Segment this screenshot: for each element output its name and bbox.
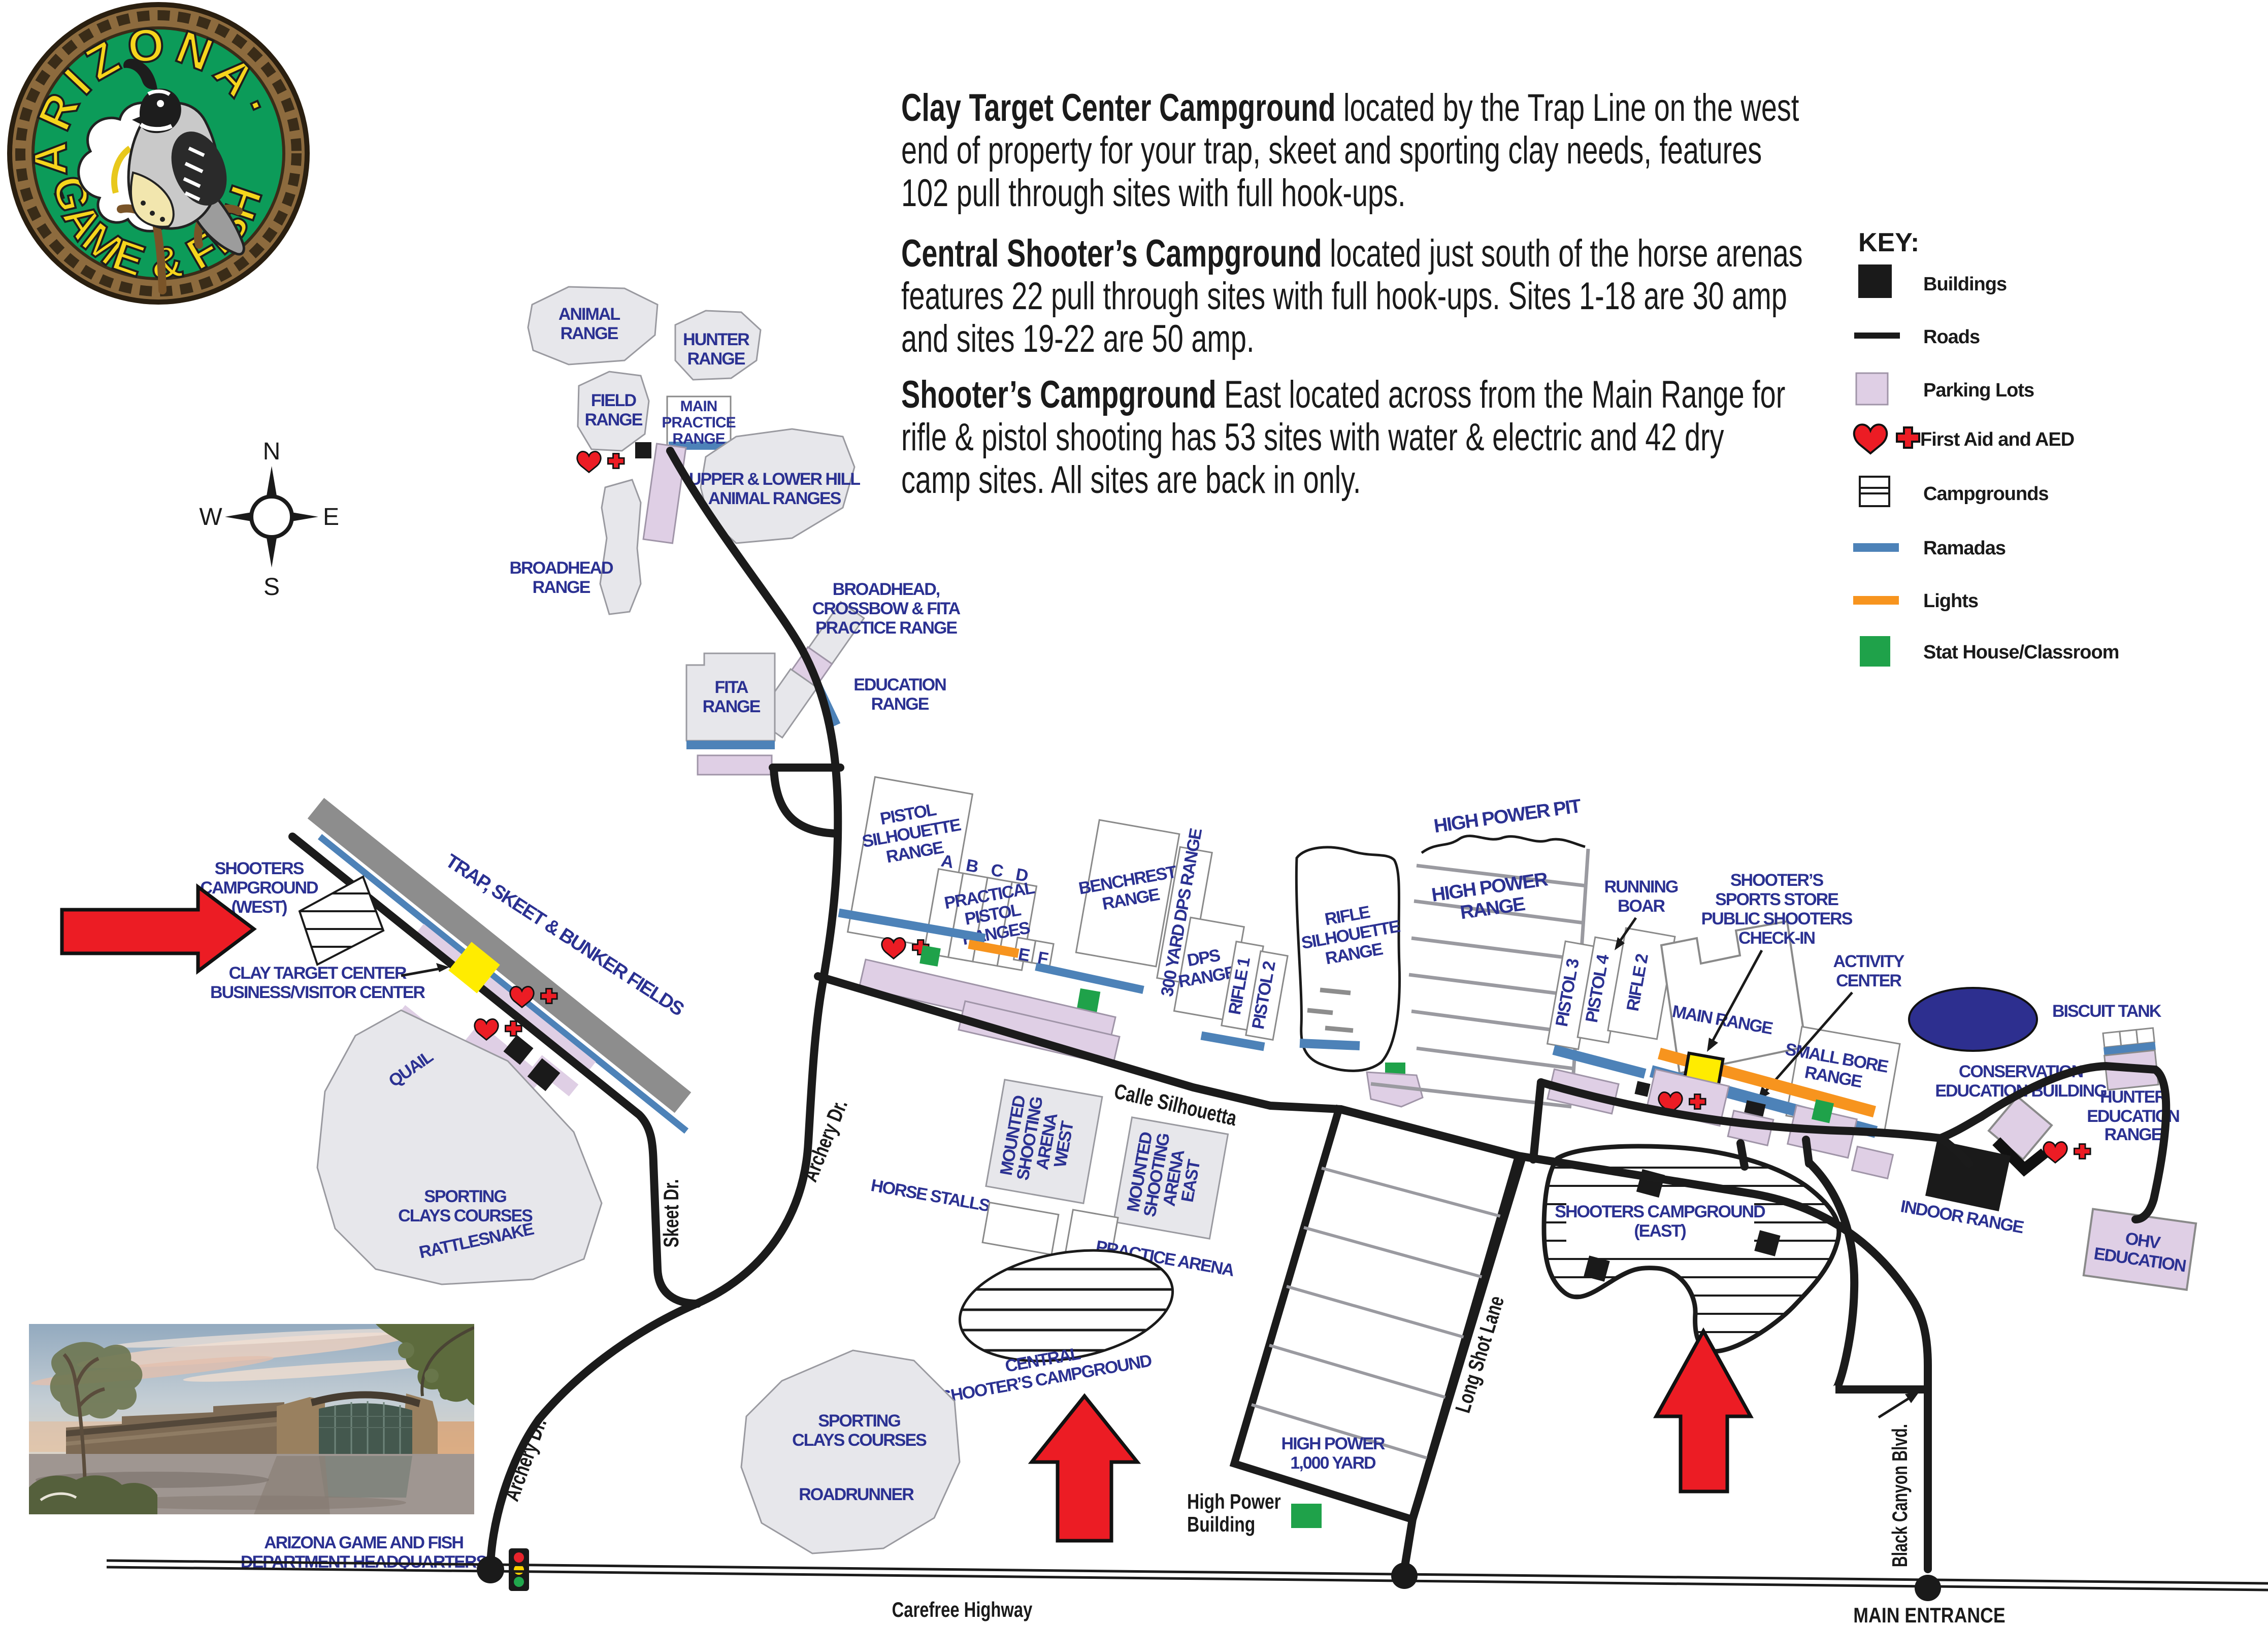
svg-text:SPORTS STORE: SPORTS STORE: [1715, 890, 1838, 909]
svg-text:ACTIVITY: ACTIVITY: [1833, 952, 1905, 971]
svg-text:RANGE: RANGE: [687, 349, 745, 369]
svg-text:HIGH POWERRANGE: HIGH POWERRANGE: [1430, 869, 1552, 927]
svg-text:FIELD: FIELD: [591, 391, 637, 410]
svg-text:CLAYS COURSES: CLAYS COURSES: [792, 1431, 927, 1450]
svg-text:BISCUIT TANK: BISCUIT TANK: [2052, 1002, 2162, 1021]
svg-text:C: C: [990, 860, 1005, 881]
svg-text:(EAST): (EAST): [1634, 1221, 1686, 1241]
svg-text:Clay Target Center Campground: Clay Target Center Campground located by…: [901, 87, 1799, 129]
svg-text:(WEST): (WEST): [232, 898, 287, 917]
svg-text:SPORTING: SPORTING: [424, 1187, 506, 1206]
svg-text:102 pull through sites with fu: 102 pull through sites with full hook-up…: [901, 172, 1406, 215]
svg-text:S: S: [264, 574, 280, 601]
svg-text:ARIZONA GAME AND FISH: ARIZONA GAME AND FISH: [264, 1533, 463, 1552]
svg-text:and sites 19-22 are 50 amp.: and sites 19-22 are 50 amp.: [901, 318, 1255, 360]
svg-text:CENTER: CENTER: [1836, 971, 1901, 990]
svg-text:RANGE: RANGE: [2105, 1125, 2162, 1144]
svg-text:B: B: [965, 855, 980, 877]
svg-text:RANGE: RANGE: [871, 694, 929, 714]
svg-text:Stat House/Classroom: Stat House/Classroom: [1923, 642, 2119, 663]
svg-text:ANIMAL: ANIMAL: [558, 305, 620, 324]
svg-text:SHOOTER’S: SHOOTER’S: [1730, 871, 1824, 890]
svg-text:KEY:: KEY:: [1858, 228, 1919, 257]
svg-text:MAIN: MAIN: [680, 398, 717, 415]
svg-text:SPORTING: SPORTING: [818, 1411, 900, 1431]
svg-text:BROADHEAD,: BROADHEAD,: [833, 580, 940, 599]
svg-text:BOAR: BOAR: [1618, 897, 1665, 916]
svg-text:camp sites. All sites are back: camp sites. All sites are back in only.: [901, 459, 1361, 502]
svg-text:EDUCATION: EDUCATION: [853, 675, 946, 694]
svg-text:RANGE: RANGE: [585, 410, 643, 429]
svg-text:Roads: Roads: [1923, 326, 1980, 348]
svg-text:HUNTER: HUNTER: [2100, 1087, 2166, 1107]
svg-text:UPPER & LOWER HILL: UPPER & LOWER HILL: [689, 470, 860, 489]
svg-text:end of property for your trap,: end of property for your trap, skeet and…: [901, 129, 1762, 172]
svg-text:RUNNING: RUNNING: [1604, 877, 1678, 897]
svg-text:SHOOTERS: SHOOTERS: [215, 859, 304, 878]
svg-text:CROSSBOW & FITA: CROSSBOW & FITA: [812, 599, 961, 618]
svg-text:CLAYS COURSES: CLAYS COURSES: [398, 1206, 533, 1225]
svg-text:RANGE: RANGE: [703, 697, 761, 716]
svg-text:ROADRUNNER: ROADRUNNER: [799, 1485, 914, 1504]
svg-text:High Power: High Power: [1187, 1490, 1281, 1514]
svg-text:rifle & pistol shooting has 53: rifle & pistol shooting has 53 sites wit…: [901, 416, 1724, 459]
svg-text:Campgrounds: Campgrounds: [1923, 483, 2049, 505]
svg-text:N: N: [263, 438, 281, 465]
svg-text:BUSINESS/VISITOR CENTER: BUSINESS/VISITOR CENTER: [210, 983, 425, 1002]
svg-text:HIGH POWER PIT: HIGH POWER PIT: [1432, 795, 1583, 837]
svg-text:RANGE: RANGE: [561, 324, 618, 343]
svg-text:RANGE: RANGE: [672, 430, 725, 447]
svg-text:FITA: FITA: [714, 678, 748, 697]
svg-text:HUNTER: HUNTER: [683, 330, 749, 349]
svg-text:ANIMAL RANGES: ANIMAL RANGES: [708, 489, 841, 508]
svg-text:BROADHEAD: BROADHEAD: [510, 558, 613, 578]
svg-text:Building: Building: [1187, 1513, 1255, 1537]
svg-text:First Aid and AED: First Aid and AED: [1920, 429, 2074, 450]
svg-text:MAIN ENTRANCE: MAIN ENTRANCE: [1853, 1604, 2005, 1625]
svg-text:CAMPGROUND: CAMPGROUND: [200, 878, 318, 898]
svg-text:Shooter’s Campground East loca: Shooter’s Campground East located across…: [901, 374, 1785, 416]
svg-text:Ramadas: Ramadas: [1923, 538, 2006, 559]
svg-text:PUBLIC SHOOTERS: PUBLIC SHOOTERS: [1701, 909, 1853, 928]
svg-text:CHECK-IN: CHECK-IN: [1738, 928, 1815, 948]
svg-text:E: E: [323, 504, 339, 530]
svg-text:W: W: [199, 504, 222, 530]
svg-text:Skeet Dr.: Skeet Dr.: [659, 1179, 683, 1248]
svg-text:HIGH POWER: HIGH POWER: [1281, 1434, 1385, 1453]
svg-text:Black Canyon Blvd.: Black Canyon Blvd.: [1888, 1424, 1912, 1567]
svg-text:Central Shooter’s Campground l: Central Shooter’s Campground located jus…: [901, 233, 1803, 275]
svg-text:Lights: Lights: [1923, 590, 1978, 612]
svg-text:SHOOTERS CAMPGROUND: SHOOTERS CAMPGROUND: [1555, 1202, 1765, 1221]
svg-text:RANGE: RANGE: [533, 578, 590, 597]
svg-text:features 22 pull through sites: features 22 pull through sites with full…: [901, 275, 1787, 318]
svg-text:CLAY TARGET CENTER: CLAY TARGET CENTER: [229, 964, 407, 983]
svg-text:Buildings: Buildings: [1923, 274, 2007, 295]
svg-text:Archery Dr.: Archery Dr.: [499, 1415, 551, 1504]
svg-text:PRACTICE: PRACTICE: [662, 414, 735, 431]
svg-text:PRACTICE RANGE: PRACTICE RANGE: [815, 618, 957, 638]
svg-text:1,000 YARD: 1,000 YARD: [1290, 1453, 1376, 1473]
svg-text:HORSE STALLS: HORSE STALLS: [869, 1176, 991, 1216]
svg-text:Carefree Highway: Carefree Highway: [892, 1598, 1033, 1621]
svg-text:Parking Lots: Parking Lots: [1923, 380, 2034, 401]
